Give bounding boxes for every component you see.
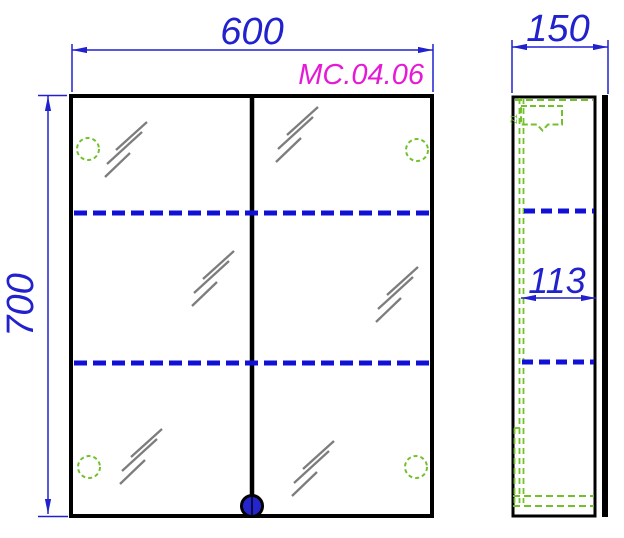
technical-drawing-canvas: 600 700 MC.04.06 21 150 — [0, 0, 624, 538]
mirror-cabinet-drawing: 600 700 MC.04.06 21 150 — [0, 0, 624, 538]
arrow-left-icon — [512, 44, 527, 50]
arrow-up-icon — [45, 96, 51, 111]
model-code-label: MC.04.06 — [298, 59, 425, 91]
arrow-right-icon — [418, 47, 433, 53]
side-view: 21 — [509, 95, 608, 517]
front-view — [71, 96, 432, 517]
dimension-depth-150: 150 — [512, 8, 608, 94]
arrow-left-icon — [72, 47, 87, 53]
dimension-inner-depth-113: 113 — [521, 260, 596, 301]
arrow-down-icon — [45, 499, 51, 514]
dimension-height-700: 700 — [0, 96, 68, 517]
depth-dimension-label: 150 — [526, 8, 589, 50]
side-carcass-outline — [513, 97, 595, 516]
door-knob — [242, 496, 263, 517]
arrow-right-icon — [593, 44, 608, 50]
height-dimension-label: 700 — [0, 273, 42, 336]
width-dimension-label: 600 — [220, 11, 283, 53]
bracket-size-label: 21 — [509, 114, 519, 124]
inner-depth-dimension-label: 113 — [528, 260, 585, 301]
side-door-panel — [602, 95, 608, 517]
